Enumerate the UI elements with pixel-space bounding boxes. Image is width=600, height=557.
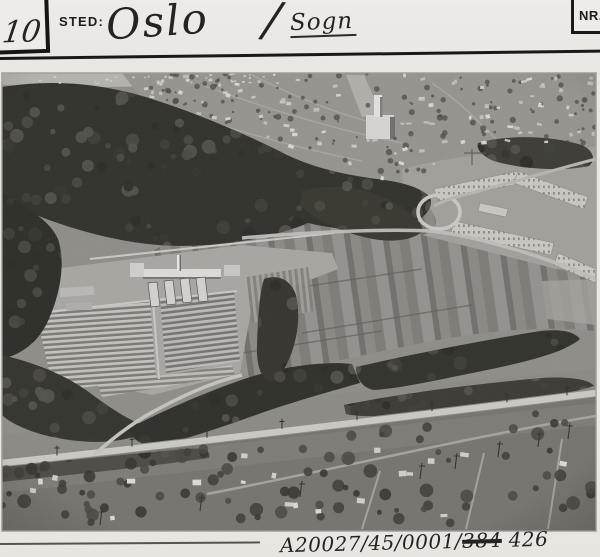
photo-code-handwritten: A20027/45/0001/384 426 — [280, 527, 549, 557]
aerial-photo-illustration — [2, 73, 596, 531]
film-grain — [2, 73, 596, 531]
footer-line — [0, 541, 260, 544]
photo-code-prefix: A20027/45/0001/ — [280, 529, 463, 557]
divider-line — [0, 49, 600, 59]
nr-label: NR. — [579, 8, 600, 23]
top-left-number-box: 10 — [0, 0, 50, 55]
place-name-handwritten: Oslo — [104, 0, 210, 50]
archive-photo-card: 10 STED: Oslo / Sogn NR. — [0, 0, 600, 557]
top-left-number: 10 — [0, 17, 42, 48]
sted-label: STED: — [59, 14, 104, 29]
aerial-photo — [2, 73, 596, 531]
place-separator-slash: / — [261, 0, 283, 49]
photo-code-crossed-out: 384 — [462, 528, 502, 553]
nr-box: NR. — [571, 0, 600, 34]
photo-code-number: 426 — [502, 527, 549, 552]
district-name-handwritten: Sogn — [290, 8, 357, 38]
